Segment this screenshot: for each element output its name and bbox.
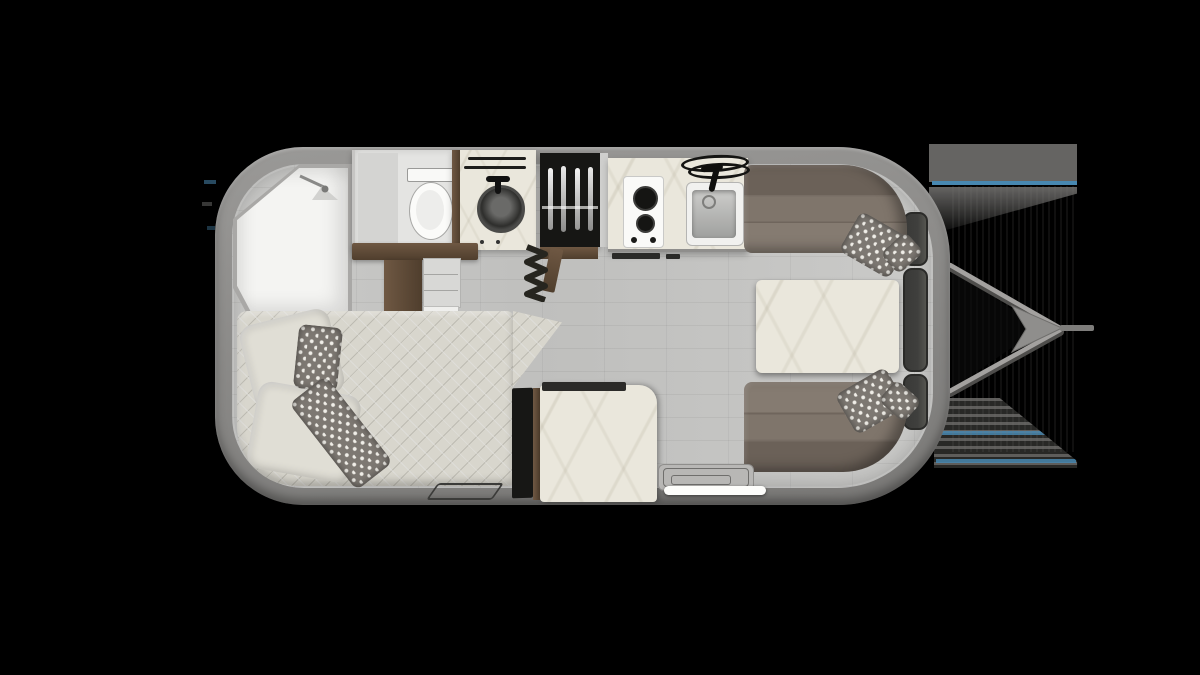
toilet-seat	[416, 190, 444, 230]
shower-head-icon	[292, 170, 348, 210]
towel-bar	[464, 166, 526, 169]
artifact-left-edge	[207, 226, 215, 230]
vanity-wood-edge	[452, 150, 460, 250]
hanger	[561, 166, 566, 232]
marble-cabinet	[540, 385, 657, 502]
towel-bar	[468, 157, 526, 160]
hitch-tongue	[1060, 325, 1094, 331]
artifact-left-edge	[202, 202, 212, 206]
artifact-blue-line	[932, 181, 1077, 185]
toe-kick-vent	[612, 253, 660, 259]
hanger	[575, 168, 580, 230]
floorplan-scene	[0, 0, 1200, 675]
toe-kick-vent	[666, 254, 680, 259]
cooktop-knob	[631, 237, 637, 243]
cooktop-knob	[650, 237, 656, 243]
toilet-tank	[407, 168, 455, 182]
hanging-wardrobe	[540, 153, 600, 247]
drain-dot	[496, 240, 500, 244]
shelf-line	[424, 274, 458, 275]
artifact-gray-block	[929, 144, 1077, 182]
artifact-left-edge	[204, 180, 216, 184]
counter-edge	[608, 249, 748, 252]
toilet-bowl	[409, 182, 453, 240]
drain-dot	[480, 240, 484, 244]
floor-mat	[426, 483, 504, 500]
cabinet-wood-edge	[533, 388, 540, 500]
toilet-room-cabinet	[358, 153, 398, 247]
dinette-table	[756, 280, 899, 373]
shelf-line	[424, 290, 458, 291]
wardrobe-divider	[600, 153, 608, 247]
vanity-counter	[452, 150, 536, 250]
accordion-door	[521, 244, 551, 302]
entry-grab-handle	[664, 486, 766, 495]
burner-small	[636, 214, 655, 233]
vanity-faucet-neck	[495, 178, 501, 194]
sidewall-window	[903, 268, 928, 372]
bath-cabinet-side	[384, 260, 422, 316]
burner-large	[633, 186, 658, 211]
cabinet-top-trim	[542, 382, 626, 391]
sink-drain	[702, 195, 716, 209]
kitchen-sink	[686, 182, 744, 246]
hanger	[588, 167, 593, 231]
hanger	[548, 168, 553, 230]
vanity-round-sink	[477, 185, 525, 233]
two-burner-cooktop	[623, 176, 664, 248]
a-frame-hitch	[938, 248, 1098, 413]
toilet-room	[352, 150, 457, 250]
shelf-cabinet	[423, 258, 461, 308]
tv-panel	[512, 388, 533, 499]
artifact-blue-line	[936, 459, 1076, 463]
step-outline-inner	[671, 475, 731, 485]
